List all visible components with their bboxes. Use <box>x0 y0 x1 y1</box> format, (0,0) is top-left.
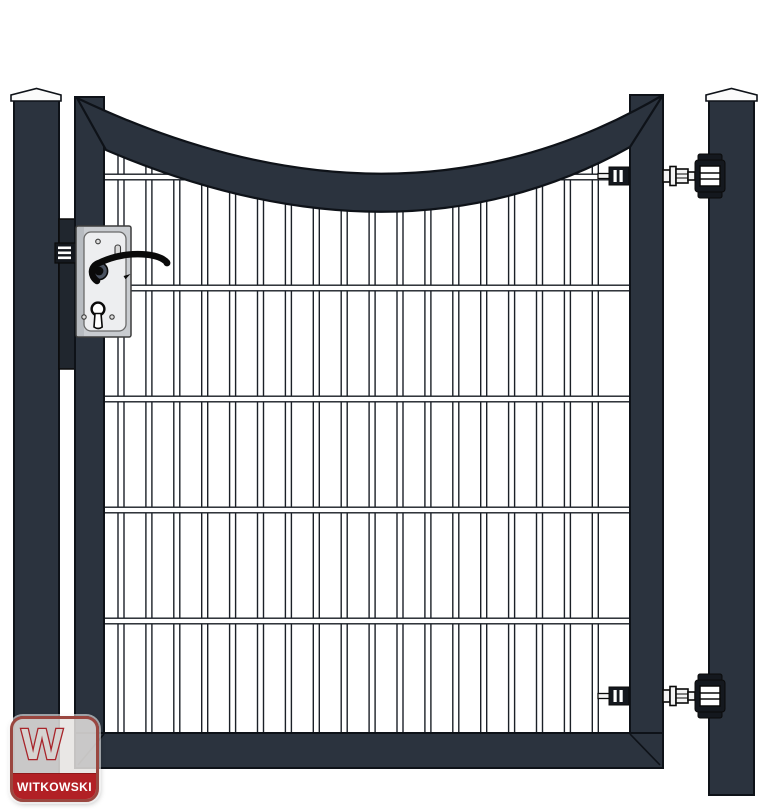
brand-logo-w-icon: W <box>13 719 96 773</box>
gate-right-stile <box>630 95 663 768</box>
lock-screw-right <box>110 315 114 319</box>
svg-text:W: W <box>21 720 63 765</box>
right-post-cap <box>706 89 757 102</box>
lock-screw-top <box>96 239 101 244</box>
brand-name-label: WITKOWSKI <box>13 773 96 799</box>
mesh-panel <box>103 125 632 737</box>
gate-product-illustration: W WITKOWSKI <box>0 0 768 811</box>
brand-badge: W WITKOWSKI <box>10 716 99 802</box>
gate-top-arc-rail <box>77 95 663 212</box>
gate-bottom-rail <box>75 733 663 768</box>
left-post <box>11 89 61 796</box>
left-post-cap <box>11 89 61 102</box>
lock-keep-plate <box>59 219 76 369</box>
gate-drawing <box>0 0 768 811</box>
gate-left-stile <box>75 97 104 768</box>
lock-screw-left <box>82 315 86 319</box>
